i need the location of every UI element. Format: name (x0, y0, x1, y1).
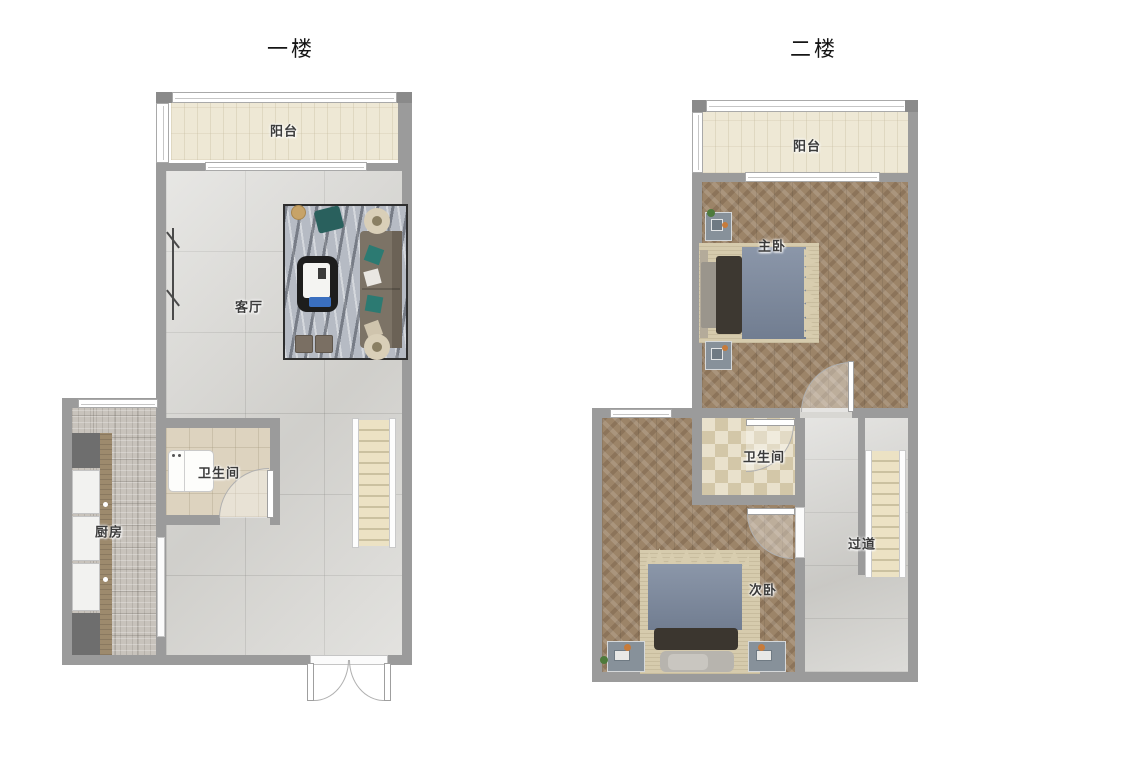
wall (852, 408, 918, 418)
secondary-bedroom-label: 次卧 (749, 580, 777, 599)
master-pillows (716, 256, 742, 334)
secondary-pillows (654, 628, 738, 650)
master-bed-blanket (742, 247, 806, 339)
wall (795, 418, 805, 505)
nightstand-tray (756, 650, 772, 661)
wall (592, 408, 602, 682)
wall (908, 112, 918, 418)
plant (707, 209, 715, 217)
wall (692, 495, 805, 505)
floor2-title: 二楼 (790, 33, 838, 63)
secondary-foot-cushion (668, 654, 708, 670)
floor-plan-canvas: 一楼 (0, 0, 1140, 764)
bathroom-2f-door-leaf (746, 419, 795, 426)
decor-item (624, 644, 631, 651)
wall (692, 408, 800, 418)
master-bedroom-label: 主卧 (758, 236, 786, 255)
nightstand-tray (614, 650, 630, 661)
secondary-door-opening (795, 507, 805, 558)
decor-item (758, 644, 765, 651)
stair-stringer (899, 450, 906, 578)
staircase-2f (872, 451, 899, 577)
nightstand-tray (711, 348, 723, 360)
balcony-2f-left-window (692, 112, 703, 173)
secondary-bedroom-door-leaf (747, 508, 795, 515)
wall (692, 100, 706, 112)
wall (908, 418, 918, 672)
decor-item (722, 222, 728, 228)
balcony-2f-top-window (706, 100, 907, 112)
balcony-2f-label: 阳台 (793, 136, 821, 155)
secondary-bed-blanket (648, 564, 742, 630)
master-bedroom-door-leaf (848, 361, 854, 412)
secondary-bedroom-window (610, 409, 672, 418)
decor-item (722, 345, 728, 351)
hallway-label: 过道 (848, 534, 876, 553)
master-sliding-window (745, 172, 880, 182)
plant (600, 656, 608, 664)
wall (905, 100, 918, 112)
bathroom-2f-label: 卫生间 (743, 447, 785, 466)
floor2-plan: 二楼 (0, 0, 1140, 764)
stair-stringer (865, 450, 872, 578)
